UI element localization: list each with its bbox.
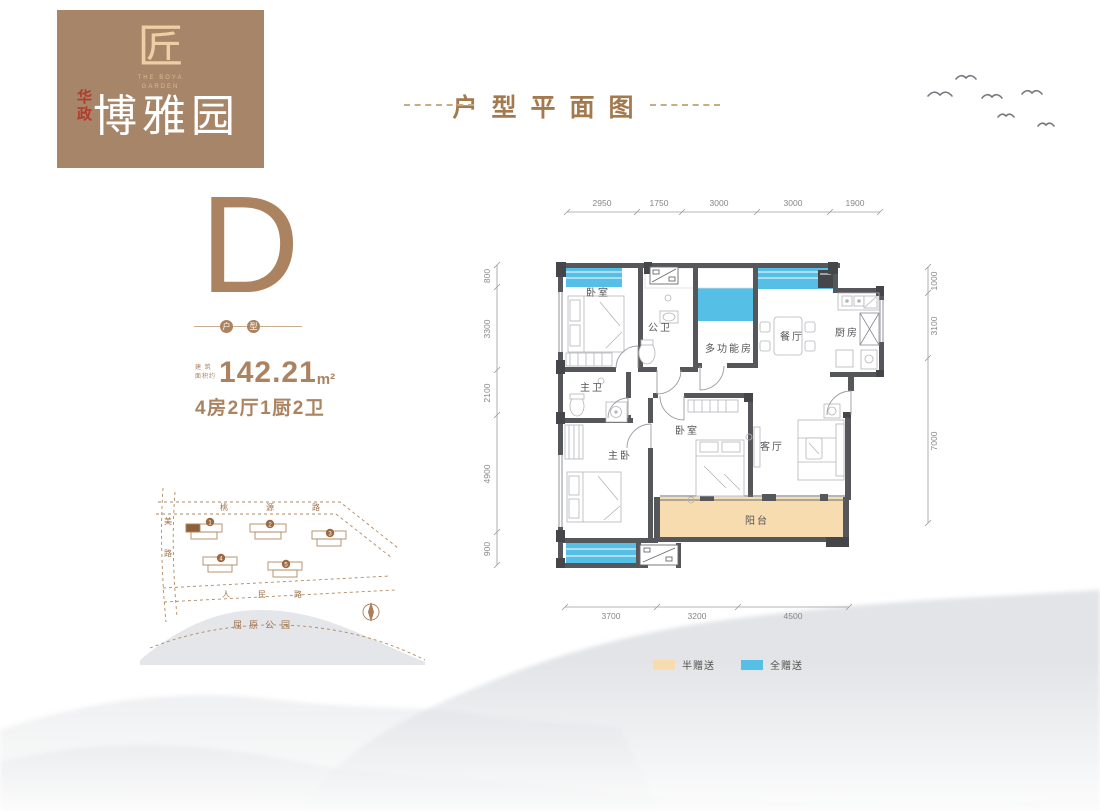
room-label-master-bedroom: 主卧	[608, 449, 632, 462]
furniture	[565, 293, 879, 522]
area-prefix: 建 筑 面积约	[195, 364, 216, 382]
svg-text:900: 900	[482, 542, 492, 556]
bird-icon	[956, 76, 976, 79]
room-label-multi-room: 多功能房	[705, 342, 753, 355]
room-label-kitchen: 厨房	[835, 326, 859, 339]
title-dash-right	[650, 104, 720, 106]
room-label-master-bath: 主卫	[580, 382, 604, 394]
svg-text:3700: 3700	[602, 611, 621, 621]
room-label-bedroom-mid: 卧室	[675, 424, 699, 437]
area-row: 建 筑 面积约 142.21 m²	[195, 358, 335, 388]
road-bottom-line	[163, 576, 390, 588]
building-footprint	[186, 524, 222, 539]
mist-overlay	[0, 660, 1100, 811]
room-label-balcony: 阳台	[745, 514, 769, 527]
svg-text:3200: 3200	[688, 611, 707, 621]
title-dash-left	[404, 104, 474, 106]
half-gift-label: 半赠送	[682, 657, 715, 672]
svg-text:3100: 3100	[929, 316, 939, 335]
svg-text:1750: 1750	[650, 198, 669, 208]
poster-canvas: 匠 THE BOYA GARDEN 华政 博雅园 户型平面图 D 户 型 建 筑…	[0, 0, 1100, 811]
road-left-line	[173, 492, 177, 616]
half-gift-swatch	[653, 660, 675, 670]
brand-name: 博雅园	[93, 80, 264, 144]
brand-logo: 匠 THE BOYA GARDEN 华政 博雅园	[57, 10, 264, 168]
full-gift-label: 全赠送	[770, 657, 803, 672]
area-unit: m²	[317, 372, 335, 387]
svg-text:3000: 3000	[784, 198, 803, 208]
road-left-label: 路	[164, 548, 172, 558]
svg-text:1000: 1000	[929, 271, 939, 290]
compass-icon	[363, 602, 379, 622]
svg-text:1900: 1900	[846, 198, 865, 208]
road-top-label: 桃源路	[220, 502, 358, 512]
floorplan-drawing: 卧室 公卫 多功能房 餐厅 厨房 主卫 主卧 卧室 客厅 阳台 2950 175…	[478, 183, 950, 635]
svg-text:3300: 3300	[482, 319, 492, 338]
svg-text:7000: 7000	[929, 431, 939, 450]
unit-type-letter: D	[200, 176, 300, 314]
svg-text:4900: 4900	[482, 464, 492, 483]
svg-text:3000: 3000	[710, 198, 729, 208]
seal-icon: 匠	[57, 24, 264, 70]
legend-full-gift: 全赠送	[741, 657, 803, 672]
full-gift-swatch	[741, 660, 763, 670]
unit-layout-desc: 4房2厅1厨2卫	[195, 393, 325, 420]
svg-text:2950: 2950	[593, 198, 612, 208]
location-siteplan: 1 2 3 4 5 桃源路 美 路 人民路 屈原公园	[140, 455, 440, 665]
park-hill	[140, 610, 425, 665]
area-value: 142.21	[219, 358, 317, 388]
legend-half-gift: 半赠送	[653, 657, 715, 672]
building-number-badges: 1 2 3 4 5	[206, 518, 334, 569]
svg-text:2100: 2100	[482, 383, 492, 402]
badge-xing: 型	[247, 320, 260, 333]
gift-legend: 半赠送 全赠送	[653, 657, 803, 672]
svg-text:4500: 4500	[784, 611, 803, 621]
road-left-label: 美	[164, 516, 172, 526]
room-label-living: 客厅	[760, 440, 784, 453]
badge-hu: 户	[220, 320, 233, 333]
room-label-bedroom-tl: 卧室	[586, 286, 610, 299]
room-label-dining: 餐厅	[780, 330, 804, 343]
room-label-public-bath: 公卫	[648, 323, 672, 334]
park-label: 屈原公园	[233, 620, 297, 630]
svg-text:800: 800	[482, 269, 492, 283]
road-bottom-label: 人民路	[222, 589, 330, 599]
